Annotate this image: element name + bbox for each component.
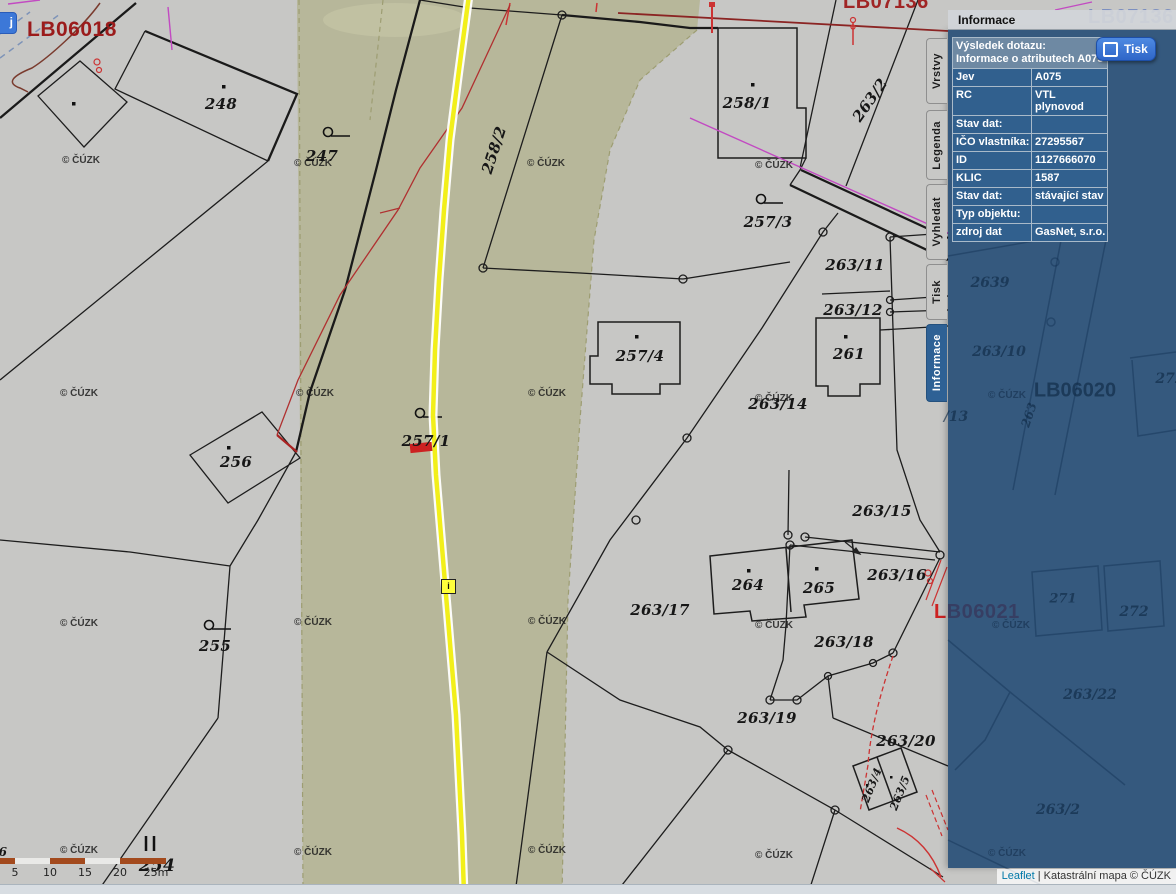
query-row-value: VTL plynovod — [1032, 87, 1107, 115]
side-tab-vrstvy[interactable]: Vrstvy — [926, 38, 947, 104]
query-header-line1: Výsledek dotazu: — [956, 40, 1104, 53]
scale-tick-label: 15 — [78, 866, 92, 879]
leaflet-link[interactable]: Leaflet — [1002, 870, 1035, 882]
side-tab-label: Vyhledat — [931, 197, 943, 246]
corner-control-button[interactable]: j — [0, 12, 17, 34]
attribution-text: Katastrální mapa © ČÚZK — [1044, 870, 1171, 882]
query-row-label: Stav dat: — [953, 116, 1032, 133]
print-button[interactable]: Tisk — [1096, 37, 1156, 61]
query-row-value: A075 — [1032, 69, 1107, 86]
query-table-row: zdroj datGasNet, s.r.o. — [953, 224, 1107, 242]
side-tab-informace[interactable]: Informace — [926, 324, 947, 402]
scale-tick-label: 5 — [12, 866, 19, 879]
query-row-label: Jev — [953, 69, 1032, 86]
query-row-value — [1032, 116, 1107, 133]
side-tab-legenda[interactable]: Legenda — [926, 110, 947, 180]
scale-bar — [0, 858, 166, 864]
query-row-value: 1127666070 — [1032, 152, 1107, 169]
query-row-value: 27295567 — [1032, 134, 1107, 151]
attribution-separator: | — [1035, 870, 1044, 882]
side-tab-label: Informace — [931, 334, 943, 391]
panel-title: Informace — [948, 10, 1176, 30]
scale-tick-label: 10 — [43, 866, 57, 879]
side-tab-label: Legenda — [931, 121, 943, 170]
query-table-row: ID1127666070 — [953, 152, 1107, 170]
olive-corridor — [297, 0, 700, 894]
query-row-label: ID — [953, 152, 1032, 169]
query-row-value: stávající stav — [1032, 188, 1107, 205]
scale-tick-label: 20 — [113, 866, 127, 879]
query-table-row: Typ objektu: — [953, 206, 1107, 224]
map-attribution: Leaflet | Katastrální mapa © ČÚZK — [997, 869, 1176, 884]
query-table-row: RCVTL plynovod — [953, 87, 1107, 116]
query-table-row: Stav dat:stávající stav — [953, 188, 1107, 206]
query-row-value: 1587 — [1032, 170, 1107, 187]
query-point-marker[interactable]: i — [441, 579, 456, 594]
query-row-label: Stav dat: — [953, 188, 1032, 205]
query-table-row: JevA075 — [953, 69, 1107, 87]
side-tab-tisk[interactable]: Tisk — [926, 264, 947, 320]
print-button-label: Tisk — [1124, 42, 1148, 56]
query-table-row: KLIC1587 — [953, 170, 1107, 188]
query-header-line2: Informace o atributech A075 — [956, 53, 1104, 66]
map-application: 248247258/2258/1263/2257/3263/11263/1226… — [0, 0, 1176, 894]
gate-symbol — [146, 836, 154, 851]
query-table-row: IČO vlastníka:27295567 — [953, 134, 1107, 152]
query-result-header: Výsledek dotazu: Informace o atributech … — [953, 38, 1107, 69]
query-row-value — [1032, 206, 1107, 223]
scale-tick-label: 25m — [144, 866, 169, 879]
query-row-label: RC — [953, 87, 1032, 115]
window-bottom-strip — [0, 884, 1176, 894]
side-tab-vyhledat[interactable]: Vyhledat — [926, 184, 947, 260]
print-checkbox[interactable] — [1103, 42, 1118, 57]
building-outlines — [590, 28, 917, 810]
query-row-label: KLIC — [953, 170, 1032, 187]
query-row-value: GasNet, s.r.o. — [1032, 224, 1107, 241]
side-tab-label: Vrstvy — [931, 53, 943, 89]
query-result-table: Výsledek dotazu: Informace o atributech … — [952, 37, 1108, 242]
query-row-label: IČO vlastníka: — [953, 134, 1032, 151]
query-table-row: Stav dat: — [953, 116, 1107, 134]
side-tab-label: Tisk — [931, 280, 943, 304]
side-tab-strip: VrstvyLegendaVyhledatTiskInformace — [926, 0, 948, 894]
query-row-label: Typ objektu: — [953, 206, 1032, 223]
query-row-label: zdroj dat — [953, 224, 1032, 241]
